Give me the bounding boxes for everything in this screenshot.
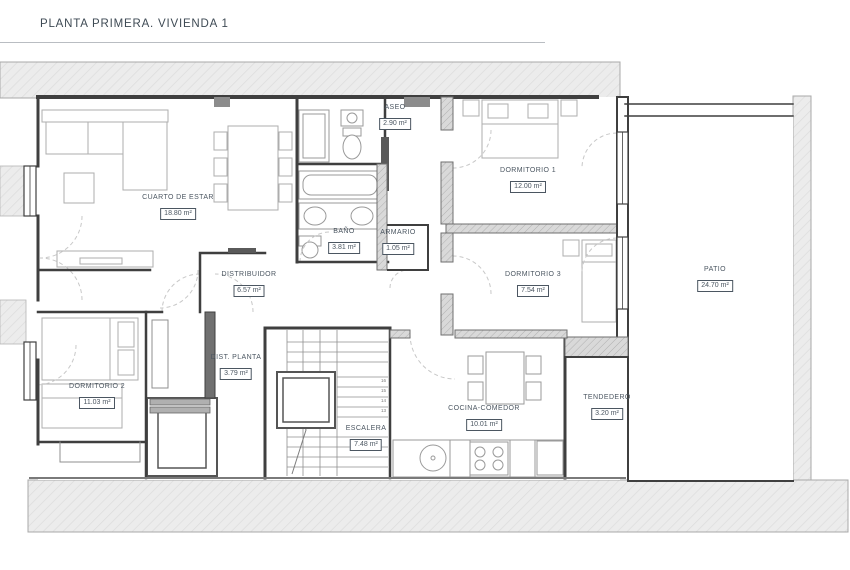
bathtub bbox=[299, 171, 381, 199]
shower bbox=[299, 110, 329, 162]
tv-bench bbox=[57, 251, 153, 267]
coffee-table bbox=[64, 173, 94, 203]
floor-plan-drawing: 16 15 14 13 bbox=[0, 0, 850, 570]
stair-step-number: 13 bbox=[381, 408, 387, 413]
toilet bbox=[343, 128, 361, 159]
floor-plan-page: PLANTA PRIMERA. VIVIENDA 1 bbox=[0, 0, 850, 570]
dining-table bbox=[214, 126, 292, 210]
stove bbox=[470, 442, 508, 475]
washing-machine bbox=[341, 110, 363, 126]
elevator bbox=[277, 372, 335, 428]
plan-svg: 16 15 14 13 bbox=[0, 0, 850, 570]
kitchen-sink bbox=[420, 445, 446, 471]
stair-step-number: 16 bbox=[381, 378, 387, 383]
fridge bbox=[537, 441, 563, 475]
bathroom-sinks bbox=[299, 203, 381, 229]
stair-step-number: 15 bbox=[381, 388, 387, 393]
stair-step-number: 14 bbox=[381, 398, 387, 403]
